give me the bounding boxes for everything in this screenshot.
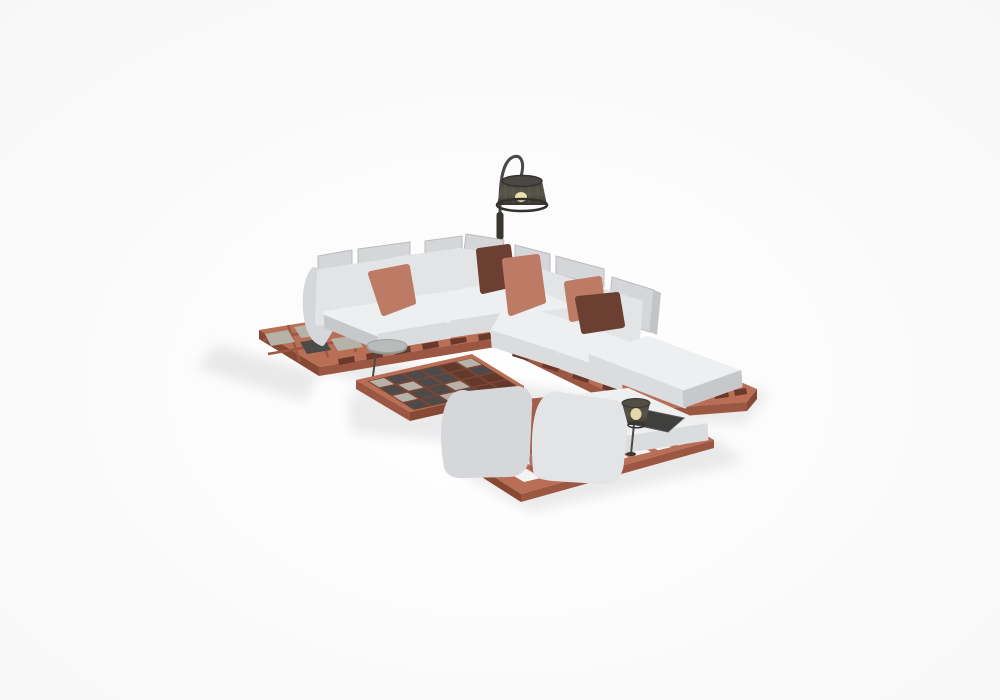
pillow-salmon-corner bbox=[505, 257, 543, 313]
studio-floor bbox=[0, 0, 1000, 700]
pillow-brown-right bbox=[578, 295, 622, 331]
side-table-top bbox=[367, 340, 407, 353]
product-render-canvas bbox=[0, 0, 1000, 700]
table-lamp-glow bbox=[631, 408, 642, 420]
lounger-back-cushion-left bbox=[444, 389, 529, 475]
table-lamp-base bbox=[626, 452, 636, 456]
lamp-shade-top bbox=[502, 176, 542, 187]
lamp-pole-joint bbox=[497, 212, 504, 240]
lamp-bulb-glow bbox=[515, 192, 527, 202]
lounger-back-cushion-right bbox=[535, 394, 625, 481]
table-lamp-top bbox=[622, 399, 650, 408]
furniture-scene bbox=[0, 0, 1000, 700]
